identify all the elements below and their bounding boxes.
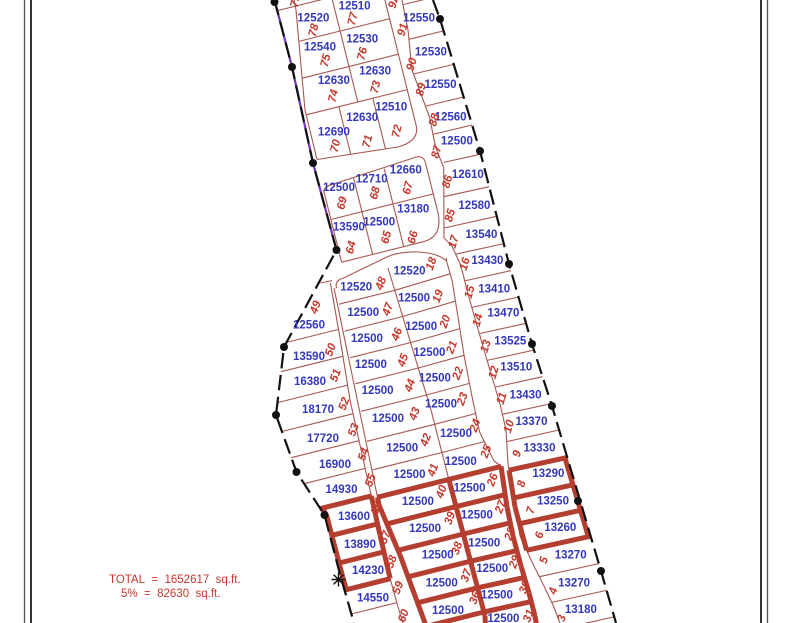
svg-text:12500: 12500	[425, 399, 457, 411]
svg-text:13430: 13430	[510, 389, 542, 401]
svg-text:12530: 12530	[346, 33, 378, 45]
svg-text:12510: 12510	[339, 1, 371, 13]
svg-text:17720: 17720	[307, 433, 339, 445]
svg-text:13260: 13260	[544, 522, 576, 534]
svg-text:12500: 12500	[413, 347, 445, 359]
svg-text:14930: 14930	[326, 484, 358, 496]
svg-text:12530: 12530	[415, 46, 447, 58]
svg-text:13410: 13410	[478, 283, 510, 295]
svg-text:12500: 12500	[363, 216, 395, 228]
svg-text:12500: 12500	[405, 321, 437, 333]
svg-text:12690: 12690	[318, 127, 350, 139]
svg-text:13180: 13180	[565, 604, 597, 616]
svg-text:14230: 14230	[352, 565, 384, 577]
svg-text:12610: 12610	[452, 169, 484, 181]
svg-text:12520: 12520	[394, 265, 426, 277]
svg-text:13590: 13590	[333, 221, 365, 233]
svg-text:12630: 12630	[359, 66, 391, 78]
svg-text:13180: 13180	[397, 204, 429, 216]
svg-text:12510: 12510	[375, 101, 407, 113]
svg-text:12710: 12710	[356, 173, 388, 185]
svg-text:13250: 13250	[537, 496, 569, 508]
svg-text:12500: 12500	[426, 578, 458, 590]
svg-text:13525: 13525	[494, 336, 527, 348]
svg-text:13540: 13540	[465, 229, 497, 241]
svg-text:12500: 12500	[487, 613, 519, 623]
svg-text:12500: 12500	[351, 333, 383, 345]
svg-text:13370: 13370	[516, 416, 548, 428]
svg-text:13430: 13430	[471, 255, 503, 267]
svg-text:13270: 13270	[558, 578, 590, 590]
svg-text:18170: 18170	[302, 404, 334, 416]
svg-text:12560: 12560	[293, 320, 325, 332]
svg-text:13270: 13270	[555, 549, 587, 561]
svg-text:12500: 12500	[372, 413, 404, 425]
svg-text:12500: 12500	[422, 549, 454, 561]
svg-text:13290: 13290	[532, 468, 564, 480]
svg-text:12500: 12500	[432, 605, 464, 617]
svg-text:16380: 16380	[294, 376, 326, 388]
svg-text:12660: 12660	[390, 165, 422, 177]
svg-text:12500: 12500	[394, 469, 426, 481]
svg-text:12500: 12500	[362, 385, 394, 397]
svg-text:12500: 12500	[468, 537, 500, 549]
svg-text:12500: 12500	[476, 563, 508, 575]
svg-text:12550: 12550	[403, 12, 435, 24]
svg-text:16900: 16900	[319, 459, 351, 471]
svg-text:TOTAL = 1652617 sq.ft.: TOTAL = 1652617 sq.ft.	[109, 574, 241, 586]
svg-text:12500: 12500	[454, 482, 486, 494]
svg-text:5% = 82630 sq.ft.: 5% = 82630 sq.ft.	[121, 588, 220, 600]
svg-text:13470: 13470	[487, 308, 519, 320]
svg-text:12500: 12500	[481, 590, 513, 602]
svg-text:12630: 12630	[346, 112, 378, 124]
svg-text:12500: 12500	[409, 523, 441, 535]
svg-text:12580: 12580	[458, 200, 490, 212]
svg-text:12550: 12550	[425, 79, 457, 91]
svg-text:12630: 12630	[318, 75, 350, 87]
svg-text:13590: 13590	[293, 351, 325, 363]
svg-text:13890: 13890	[344, 539, 376, 551]
svg-text:13600: 13600	[338, 511, 370, 523]
svg-text:12500: 12500	[441, 135, 473, 147]
svg-text:12520: 12520	[297, 12, 329, 24]
svg-text:12500: 12500	[402, 496, 434, 508]
svg-text:12500: 12500	[445, 456, 477, 468]
svg-text:12520: 12520	[340, 281, 372, 293]
svg-text:12500: 12500	[355, 359, 387, 371]
svg-text:14550: 14550	[357, 593, 389, 605]
svg-text:13510: 13510	[500, 362, 532, 374]
svg-text:12500: 12500	[461, 510, 493, 522]
svg-text:12500: 12500	[323, 182, 355, 194]
svg-text:13330: 13330	[524, 443, 556, 455]
svg-text:12500: 12500	[419, 373, 451, 385]
svg-text:12500: 12500	[386, 443, 418, 455]
svg-text:12500: 12500	[347, 307, 379, 319]
svg-text:12500: 12500	[398, 293, 430, 305]
svg-text:12540: 12540	[304, 42, 336, 54]
